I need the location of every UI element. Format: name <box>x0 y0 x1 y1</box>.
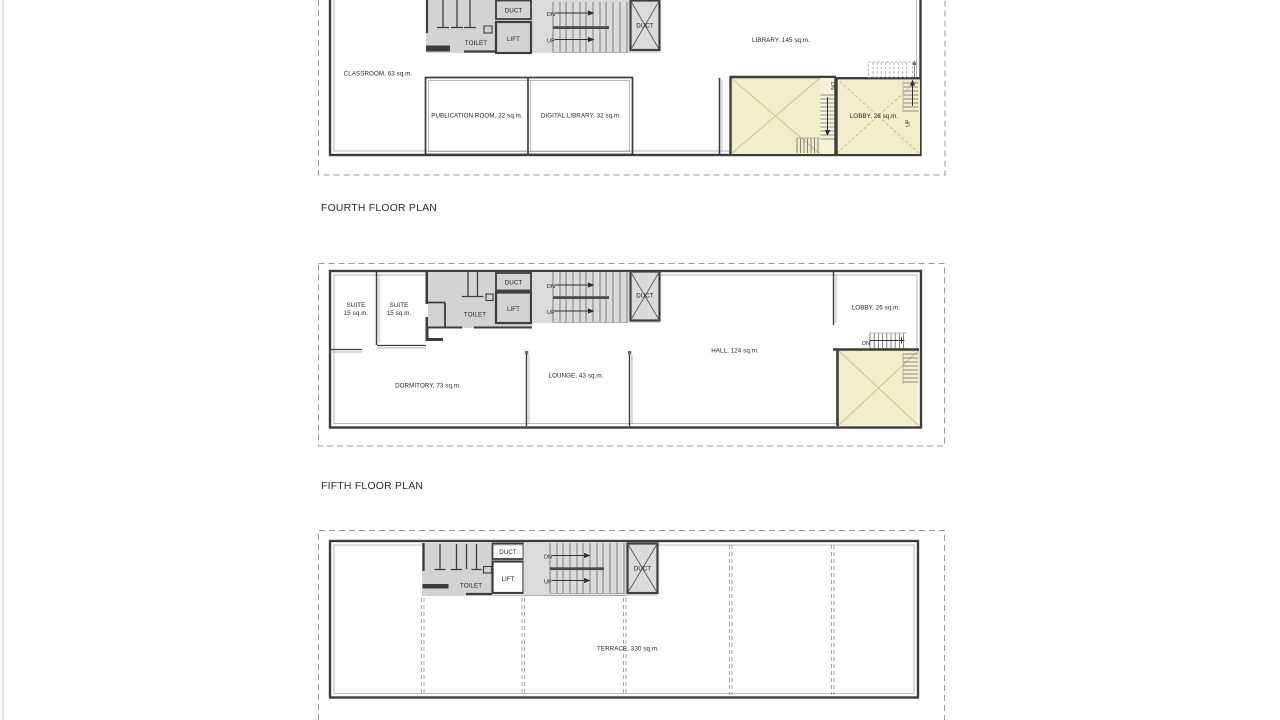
hall-label: HALL, 124 sq.m. <box>711 348 759 355</box>
fourth-floor-title: FOURTH FLOOR PLAN <box>321 203 437 214</box>
stair-up-label: UP <box>547 310 555 316</box>
toilet-label: TOILET <box>464 312 486 319</box>
drawing-sheet: TOILET DUCT LIFT DN UP DUCT <box>0 0 1280 720</box>
floor-plans-drawing: TOILET DUCT LIFT DN UP DUCT <box>0 0 1280 720</box>
duct-label: DUCT <box>499 549 517 556</box>
duct-shaft-label: DUCT <box>636 293 654 300</box>
lift-label: LIFT <box>507 36 520 43</box>
fifth-floor-title: FIFTH FLOOR PLAN <box>321 481 423 492</box>
interior-rooms: PUBLICATION ROOM, 32 sq.m. DIGITAL LIBRA… <box>426 78 633 155</box>
fourth-floor-plan: TOILET DUCT LIFT DN UP DUCT <box>319 0 946 214</box>
library-label: LIBRARY, 145 sq.m. <box>752 37 810 44</box>
stair-up-label: UP <box>547 39 555 45</box>
duct-label: DUCT <box>505 8 523 15</box>
toilet-room: TOILET <box>422 543 492 596</box>
lounge-label: LOUNGE, 43 sq.m. <box>549 373 604 380</box>
toilet-label: TOILET <box>460 583 482 590</box>
lift-label: LIFT <box>501 576 514 583</box>
suite2-area-label: 15 sq.m. <box>387 310 412 317</box>
duct-shaft-label: DUCT <box>636 23 654 30</box>
lobby-up-label: UP <box>906 119 912 127</box>
fifth-floor-plan: SUITE 15 sq.m. SUITE 15 sq.m. TOILET DUC… <box>319 264 945 493</box>
digital-library-label: DIGITAL LIBRARY, 32 sq.m. <box>541 113 622 120</box>
terrace-floor-plan: TOILET DUCT LIFT DN UP DUCT TERRACE, 330… <box>319 531 945 720</box>
lift-label: LIFT <box>507 306 520 313</box>
void-dn-label: DN <box>829 82 835 90</box>
stair-dn-label: DN <box>547 284 555 290</box>
stair-rail <box>550 567 604 570</box>
classroom-label: CLASSROOM, 63 sq.m. <box>344 71 413 78</box>
dormitory-label: DORMITORY, 73 sq.m. <box>395 383 461 390</box>
suite1-name-label: SUITE <box>347 302 366 309</box>
suite2-name-label: SUITE <box>390 302 409 309</box>
dashed-stair-above <box>869 60 917 78</box>
stair-dn-label: DN <box>544 555 552 561</box>
publication-room-label: PUBLICATION ROOM, 32 sq.m. <box>431 113 523 120</box>
terrace-label: TERRACE, 330 sq.m. <box>597 646 659 653</box>
stair-rail <box>553 26 609 29</box>
toilet-label: TOILET <box>465 40 487 47</box>
room-dividers <box>525 351 632 426</box>
lobby-room: LOBBY, 26 sq.m. UP <box>836 77 921 155</box>
stair-dn-label: DN <box>547 12 555 18</box>
void-opening <box>833 350 919 427</box>
lobby-label: LOBBY, 26 sq.m. <box>852 305 901 312</box>
stair-rail <box>553 296 609 299</box>
suite1-area-label: 15 sq.m. <box>344 310 369 317</box>
lobby-label: LOBBY, 26 sq.m. <box>850 113 899 120</box>
lobby-dn-label: DN <box>862 341 870 347</box>
void-dn-stair: DN <box>820 77 836 155</box>
stair-up-label: UP <box>544 580 552 586</box>
lobby-room: LOBBY, 26 sq.m. DN <box>834 272 908 349</box>
duct-shaft-label: DUCT <box>634 566 652 573</box>
suite-rooms: SUITE 15 sq.m. SUITE 15 sq.m. <box>330 272 443 352</box>
duct-label: DUCT <box>505 280 523 287</box>
